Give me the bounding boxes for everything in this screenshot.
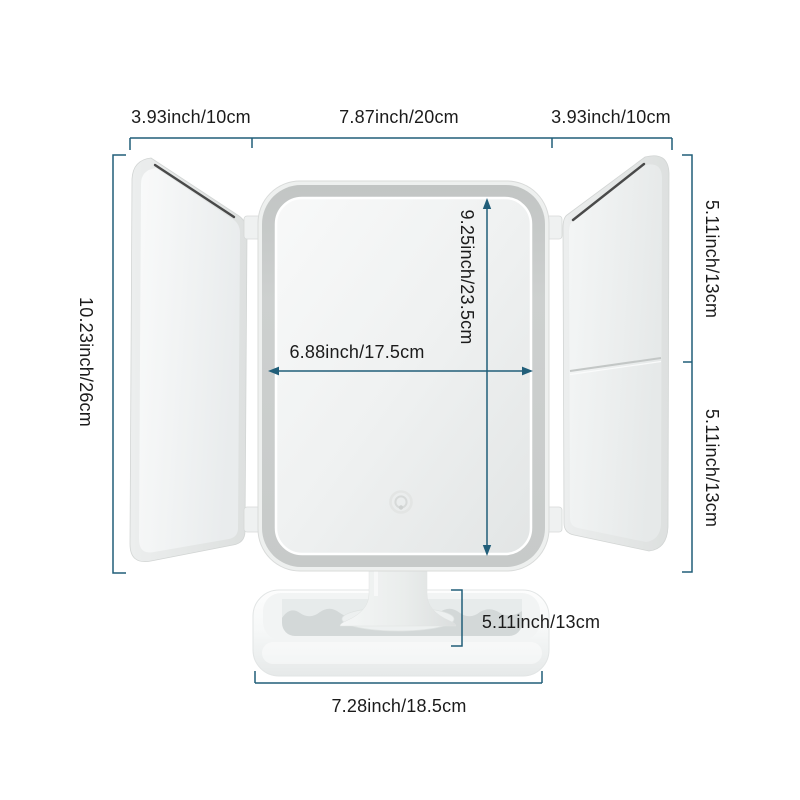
center-mirror: [258, 181, 549, 571]
label-right-upper-section-height: 5.11inch/13cm: [703, 200, 721, 318]
left-panel-mirror: [139, 168, 240, 552]
label-mirror-width: 6.88inch/17.5cm: [289, 343, 424, 361]
label-right-panel-width: 3.93inch/10cm: [551, 108, 671, 126]
label-mirror-height: 9.25inch/23.5cm: [458, 209, 476, 344]
dimension-diagram: 3.93inch/10cm 7.87inch/20cm 3.93inch/10c…: [0, 0, 800, 800]
label-base-height: 5.11inch/13cm: [482, 613, 600, 631]
dim-line-right-height: [682, 155, 692, 572]
label-base-width: 7.28inch/18.5cm: [331, 697, 466, 715]
center-mirror-glass: [276, 198, 531, 554]
left-panel: [130, 158, 247, 562]
right-panel-mirror: [569, 164, 662, 542]
dim-line-left-height: [113, 155, 126, 573]
label-center-panel-width: 7.87inch/20cm: [339, 108, 459, 126]
right-panel: [563, 156, 669, 551]
label-right-lower-section-height: 5.11inch/13cm: [703, 409, 721, 527]
label-left-panel-width: 3.93inch/10cm: [131, 108, 251, 126]
dim-line-top-width: [130, 138, 672, 150]
label-total-height: 10.23inch/26cm: [77, 297, 95, 427]
